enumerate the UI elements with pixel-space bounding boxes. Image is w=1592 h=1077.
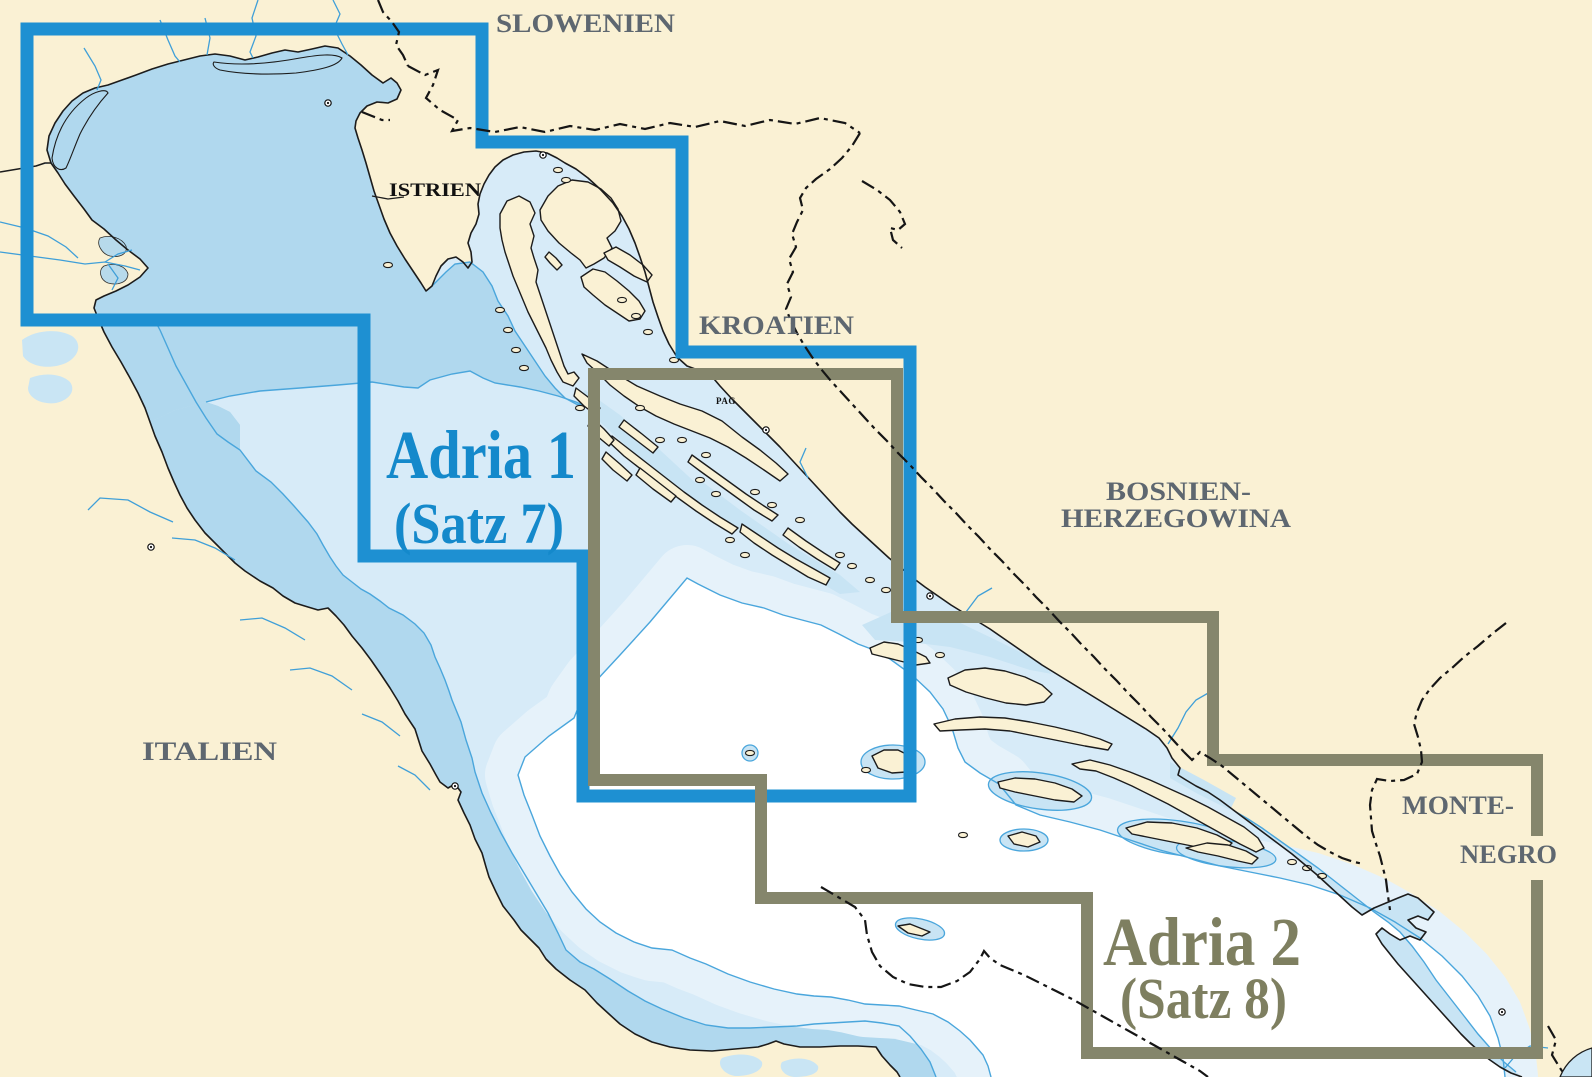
svg-text:(Satz 7): (Satz 7) xyxy=(394,491,564,556)
svg-text:(Satz 8): (Satz 8) xyxy=(1120,966,1287,1031)
svg-text:ISTRIEN: ISTRIEN xyxy=(389,180,481,201)
svg-text:NEGRO: NEGRO xyxy=(1460,840,1557,869)
svg-text:Adria 1: Adria 1 xyxy=(386,417,576,493)
svg-text:KROATIEN: KROATIEN xyxy=(699,311,854,340)
svg-text:MONTE-: MONTE- xyxy=(1402,791,1514,820)
svg-text:HERZEGOWINA: HERZEGOWINA xyxy=(1061,504,1291,533)
svg-text:ITALIEN: ITALIEN xyxy=(142,737,277,766)
svg-text:SLOWENIEN: SLOWENIEN xyxy=(496,9,675,38)
svg-text:PAG: PAG xyxy=(716,396,736,406)
svg-text:BOSNIEN-: BOSNIEN- xyxy=(1106,477,1251,506)
